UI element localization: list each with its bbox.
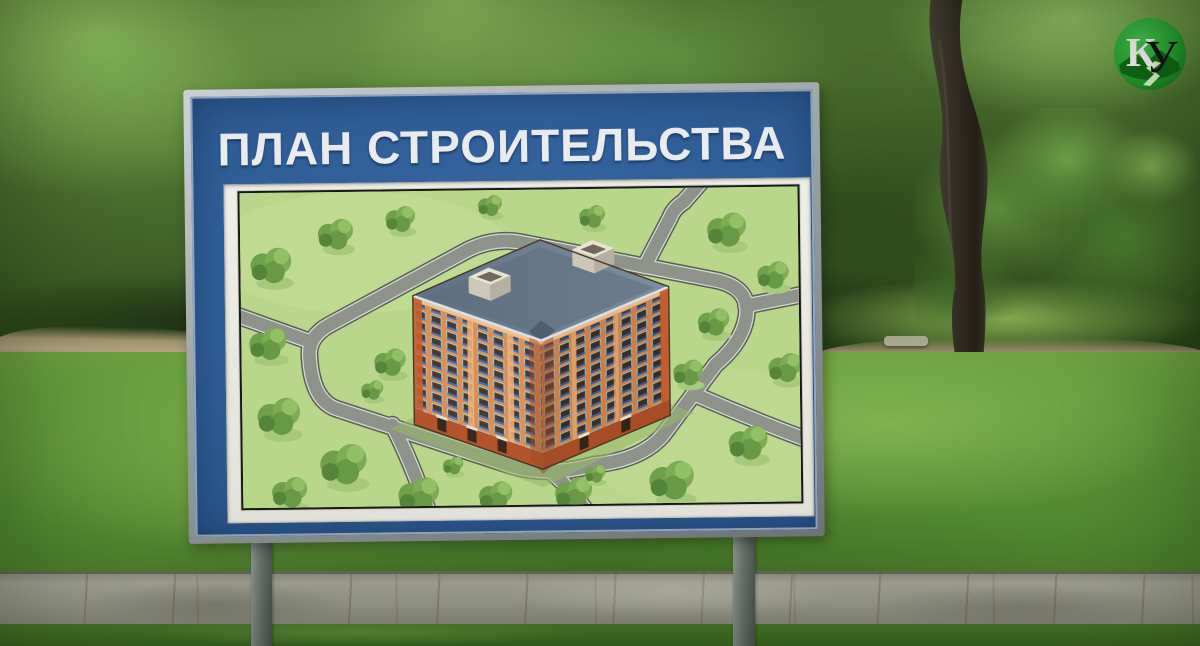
facade-center-recess (529, 333, 555, 474)
billboard-post-right (733, 526, 755, 646)
grass-foreground (0, 624, 1200, 646)
billboard-post-left (251, 526, 272, 646)
logo-letter-u: У (1145, 31, 1178, 82)
site-plan-illustration (240, 186, 802, 508)
tree-trunk (893, 0, 989, 408)
billboard-frame: ПЛАН СТРОИТЕЛЬСТВА (183, 82, 824, 544)
site-plan-picture (237, 184, 803, 510)
billboard-panel: ПЛАН СТРОИТЕЛЬСТВА (190, 89, 817, 537)
billboard-title: ПЛАН СТРОИТЕЛЬСТВА (191, 103, 814, 189)
billboard: ПЛАН СТРОИТЕЛЬСТВА (183, 82, 824, 544)
brand-logo: К У (1112, 16, 1188, 92)
poster-mat (223, 177, 814, 523)
sidewalk (0, 571, 1200, 626)
park-photo-scene: ПЛАН СТРОИТЕЛЬСТВА (0, 0, 1200, 646)
